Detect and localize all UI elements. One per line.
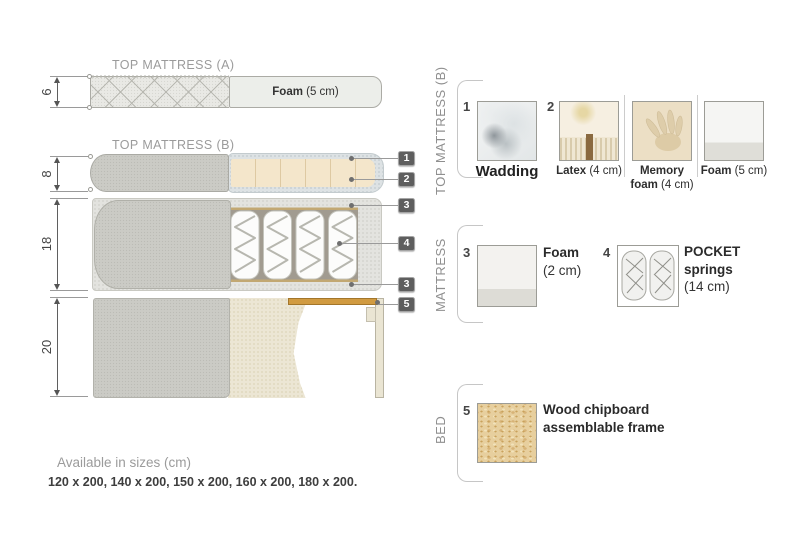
wadding-border-layer (228, 153, 384, 193)
wood-chipboard-label: Wood chipboard assemblable frame (543, 401, 673, 436)
bed-fabric-drape (228, 298, 308, 398)
fabric-cover-b (90, 154, 229, 192)
dimension-tick (50, 290, 88, 291)
legend-num-1: 1 (463, 99, 470, 114)
ruffle-trim (91, 75, 229, 78)
dimension-line (57, 205, 58, 284)
top-mattress-a-drawing: Foam (5 cm) (90, 76, 382, 108)
dimension-8-label: 8 (39, 162, 53, 186)
number-tag-5: 5 (398, 297, 415, 312)
foam-2cm-image (477, 245, 537, 307)
dimension-line (57, 163, 58, 185)
memory-foam-image (632, 101, 692, 161)
bed-frame-notch (366, 307, 376, 322)
legend-group-top-mattress-b-label: TOP MATTRESS (B) (433, 70, 448, 195)
legend-num-2: 2 (547, 99, 554, 114)
leader-dot (349, 203, 354, 208)
dimension-6-label: 6 (39, 80, 53, 104)
number-tag-3-bottom: 3 (398, 277, 415, 292)
pocket-springs-icon (618, 246, 678, 306)
leader-dot (349, 177, 354, 182)
leader-dot (349, 156, 354, 161)
foam-2cm-label: Foam(2 cm) (543, 244, 603, 279)
number-tag-4: 4 (398, 236, 415, 251)
available-sizes-list: 120 x 200, 140 x 200, 150 x 200, 160 x 2… (48, 475, 357, 489)
leader-dot (337, 241, 342, 246)
legend-group-bed-label: BED (433, 400, 448, 460)
bed-frame-post (375, 298, 384, 398)
dimension-20-label: 20 (39, 335, 53, 359)
top-mattress-a-title: TOP MATTRESS (A) (112, 58, 234, 72)
dimension-tick (50, 396, 88, 397)
corner-knob (87, 105, 92, 110)
foam-5cm-image (704, 101, 764, 161)
wood-slat (288, 298, 377, 305)
leader-line (352, 179, 398, 180)
corner-knob (88, 187, 93, 192)
memory-foam-label: Memory foam (4 cm) (627, 164, 697, 193)
number-tag-1: 1 (398, 151, 415, 166)
arrow-down-icon (54, 284, 60, 290)
arrow-down-icon (54, 185, 60, 191)
dimension-tick (50, 191, 88, 192)
wadding-image (477, 101, 537, 161)
foam-a-label: Foam (5 cm) (272, 86, 338, 98)
pocket-springs-image (617, 245, 679, 307)
wood-chipboard-image (477, 403, 537, 463)
dimension-18-label: 18 (39, 232, 53, 256)
corner-knob (88, 154, 93, 159)
top-mattress-b-drawing (90, 153, 384, 193)
corner-knob (87, 74, 92, 79)
leader-dot (375, 300, 380, 305)
latex-blocks-layer (231, 159, 375, 187)
dimension-line (57, 304, 58, 390)
wadding-label: Wadding (462, 163, 552, 182)
fabric-cover-mattress (94, 200, 231, 289)
foam-layer-a: Foam (5 cm) (229, 76, 382, 108)
number-tag-3-top: 3 (398, 198, 415, 213)
leader-line (379, 304, 398, 305)
legend-num-5: 5 (463, 403, 470, 418)
bed-fabric-cover (93, 298, 230, 398)
top-mattress-b-title: TOP MATTRESS (B) (112, 138, 234, 152)
legend-num-3: 3 (463, 245, 470, 260)
legend-group-mattress-label: MATTRESS (433, 230, 448, 320)
quilted-cover-layer (90, 76, 229, 108)
latex-label: Latex (4 cm) (549, 164, 629, 178)
mattress-construction-diagram: 6 8 18 20 TOP MATTRESS (A) Foam (5 cm) T… (0, 0, 800, 533)
legend-divider (624, 95, 625, 177)
legend-divider (697, 95, 698, 177)
available-sizes-heading: Available in sizes (cm) (57, 455, 191, 470)
hand-imprint-icon (633, 102, 691, 160)
dimension-line (57, 82, 58, 102)
leader-dot (349, 282, 354, 287)
pocket-springs-label: POCKET springs(14 cm) (684, 243, 748, 296)
arrow-down-icon (54, 390, 60, 396)
legend-num-4: 4 (603, 245, 610, 260)
leader-line (352, 205, 398, 206)
leader-line (352, 284, 398, 285)
leader-line (352, 158, 398, 159)
latex-image (559, 101, 619, 161)
foam-5cm-label: Foam (5 cm) (699, 164, 769, 178)
dimension-tick (50, 107, 88, 108)
leader-line (340, 243, 398, 244)
number-tag-2: 2 (398, 172, 415, 187)
